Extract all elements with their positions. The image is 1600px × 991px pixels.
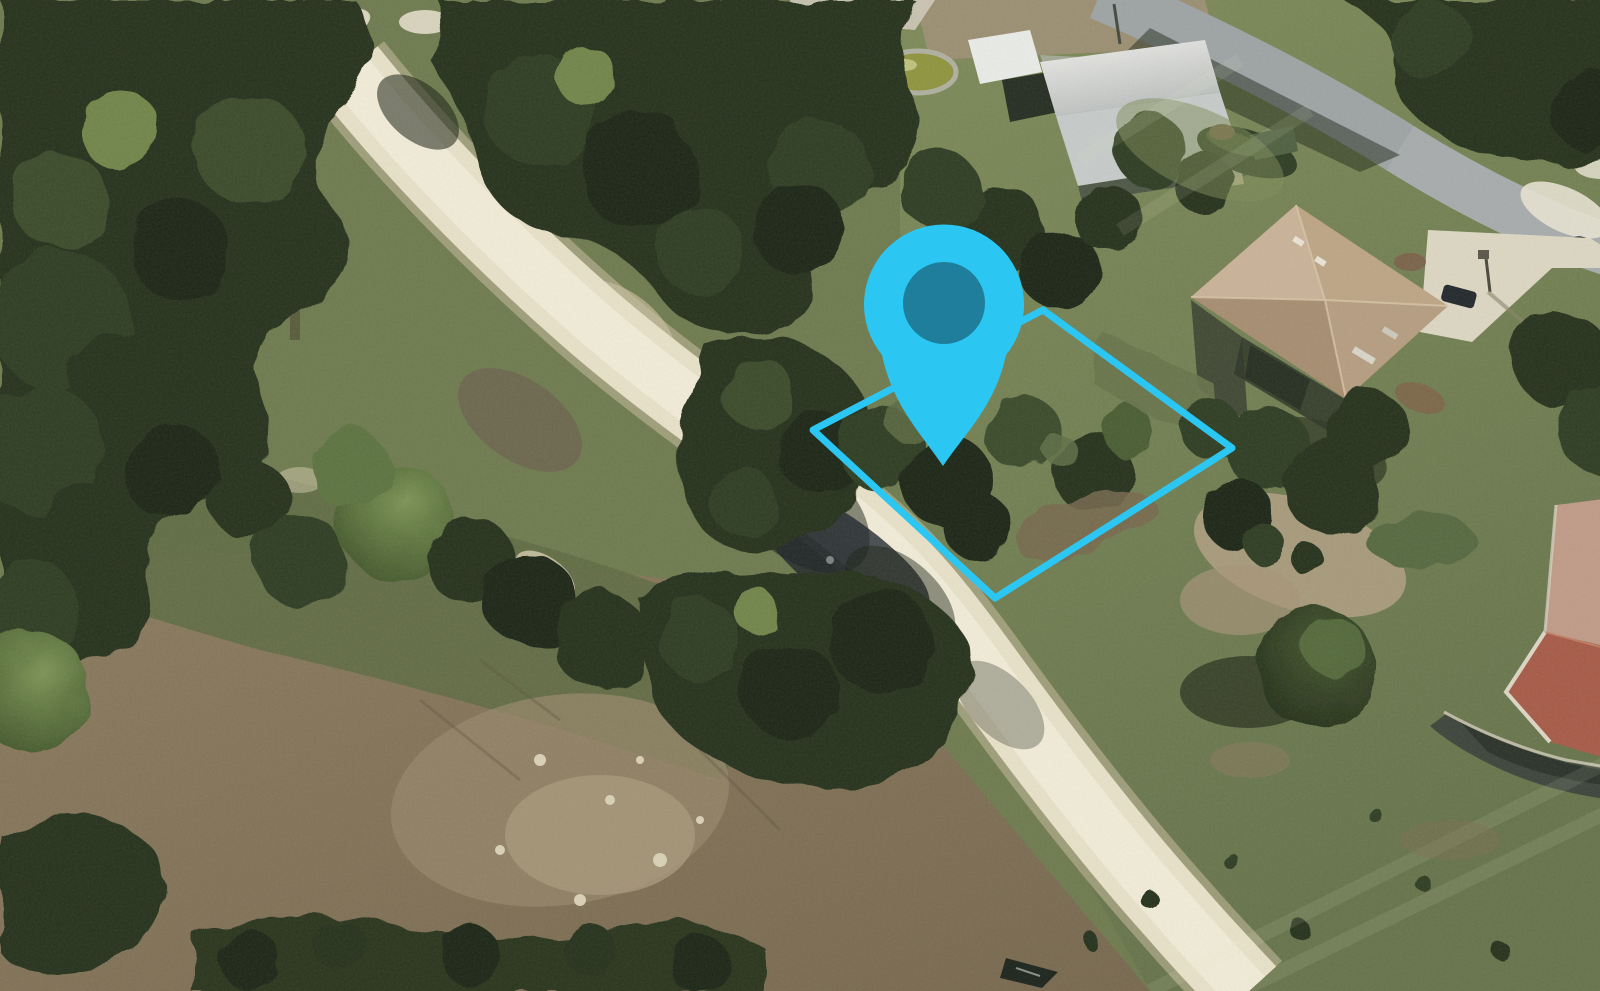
image-grain	[0, 0, 1600, 991]
satellite-imagery	[0, 0, 1600, 991]
pin-inner-dot	[903, 262, 985, 344]
aerial-map-view	[0, 0, 1600, 991]
